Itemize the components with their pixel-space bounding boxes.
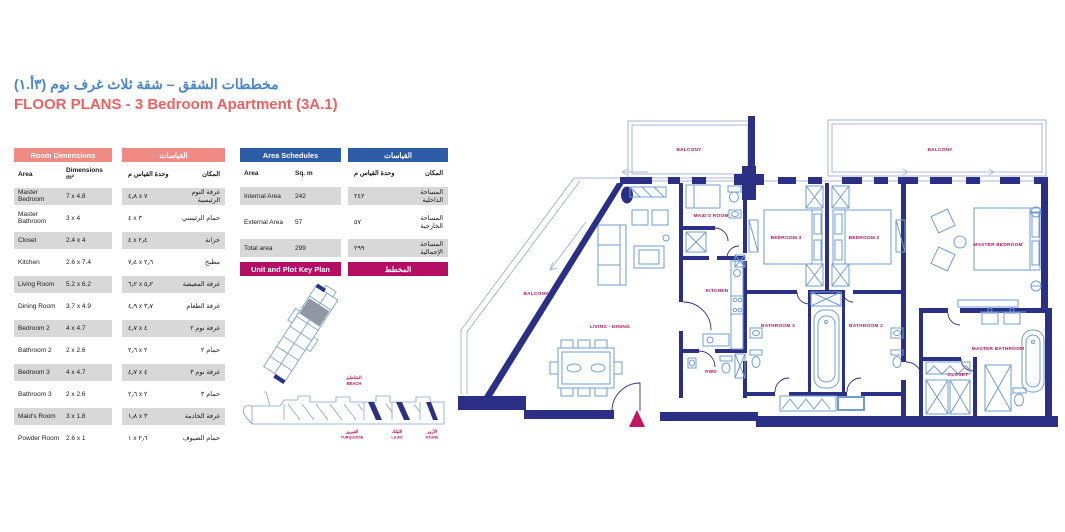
room-row: Dining Room3.7 x 4.9 ٤٫٩ x ٣٫٧غرفة الطعا… <box>14 295 225 317</box>
room-name: Bathroom 3 <box>14 391 66 398</box>
brochure-page: مخططات الشقق – شقة ثلاث غرف نوم (٣أ.١) F… <box>0 0 1065 532</box>
room-dim-ar: ١٫٨ x ٣ <box>122 412 174 420</box>
beach-label-en: BEACH <box>347 381 362 386</box>
room-row: Bathroom 32 x 2.6 ٢٫٦ x ٢حمام ٣ <box>14 383 225 405</box>
area-row: External Area57 ٥٧المساحة الخارجية <box>240 209 448 235</box>
page-title-arabic: مخططات الشقق – شقة ثلاث غرف نوم (٣أ.١) <box>14 76 279 93</box>
room-dim: 3 x 1.8 <box>66 413 112 420</box>
room-row: Living Room5.2 x 6.2 ٦٫٢ x ٥٫٢غرفة المعي… <box>14 273 225 295</box>
room-name: Bedroom 3 <box>14 369 66 376</box>
dining-furniture <box>550 340 622 396</box>
room-dim: 5.2 x 6.2 <box>66 281 112 288</box>
room-name: Powder Room <box>14 435 66 442</box>
room-name-ar: غرفة نوم ٢ <box>174 324 225 332</box>
room-dim-ar: ٤٫٨ x ٧ <box>122 192 174 200</box>
tower3-label-ar: الأزور <box>426 428 437 435</box>
room-name-ar: حمام الرئيسي <box>174 214 225 222</box>
entrance-door <box>612 383 640 411</box>
room-row: Closet2.4 x 4 ٤ x ٢٫٤خزانة <box>14 229 225 251</box>
room-dim-ar: ٢٫٦ x ٢ <box>122 346 174 354</box>
area-name: Total area <box>240 245 295 252</box>
room-dim: 2 x 2.6 <box>66 347 112 354</box>
tower2-label-en: LILAC <box>391 436 402 440</box>
room-name-ar: حمام الضيوف <box>174 434 225 442</box>
living-dining-label: LIVING - DINING <box>590 324 630 330</box>
room-dimensions-header-ar: القياسات <box>122 148 225 162</box>
room-name: Kitchen <box>14 259 66 266</box>
master-bathroom-label: MASTER BATHROOM <box>972 346 1024 352</box>
room-dim: 7 x 4.8 <box>66 193 112 200</box>
area-row: Total area299 ٢٩٩المساحة الإجمالية <box>240 235 448 261</box>
tower1-label-ar: الفيروز <box>345 429 359 435</box>
room-row: Bathroom 22 x 2.6 ٢٫٦ x ٢حمام ٢ <box>14 339 225 361</box>
room-row: Powder Room2.6 x 1 ١ x ٢٫٦حمام الضيوف <box>14 427 225 449</box>
col-area-en: Area <box>240 170 295 177</box>
room-dim: 3 x 4 <box>66 215 112 222</box>
area-name: Internal Area <box>240 193 295 200</box>
bedroom3-label: BEDROOM 3 <box>771 235 802 241</box>
area-name: External Area <box>240 219 295 226</box>
room-dim: 4 x 4.7 <box>66 369 112 376</box>
bathroom3-label: BATHROOM 3 <box>761 323 795 329</box>
area-schedules-table: Area Sq. m وحدة القياس م المكان Internal… <box>240 163 448 261</box>
room-name: Bedroom 2 <box>14 325 66 332</box>
room-dim-ar: ١ x ٢٫٦ <box>122 434 174 442</box>
room-name: Living Room <box>14 281 66 288</box>
highlighted-unit <box>299 298 329 326</box>
key-plan-header-en: Unit and Plot Key Plan <box>240 262 341 276</box>
floor-plan-drawing: BALCONY BALCONY BALCONY MAID'S ROOM KITC… <box>452 105 1065 457</box>
room-name-ar: غرفة النوم الرئيسية <box>174 188 225 204</box>
corridor-closet <box>780 396 864 411</box>
room-dim: 2.6 x 1 <box>66 435 112 442</box>
col-area-en: Area <box>14 171 66 178</box>
room-name-ar: غرفة الخادمة <box>174 412 225 420</box>
room-name: Dining Room <box>14 303 66 310</box>
room-name-ar: خزانة <box>174 236 225 244</box>
area-schedules-header-en: Area Schedules <box>240 148 341 162</box>
col-area-ar: المكان <box>400 169 448 177</box>
area-name-ar: المساحة الخارجية <box>400 214 448 230</box>
room-name-ar: غرفة الطعام <box>174 302 225 310</box>
room-dim: 2.4 x 4 <box>66 237 112 244</box>
room-name: Master Bedroom <box>14 189 66 203</box>
room-name-ar: غرفة نوم ٣ <box>174 368 225 376</box>
area-schedules-header-ar: القياسات <box>348 148 448 162</box>
pwd-door <box>699 351 715 367</box>
room-dim-ar: ٤ x ٣ <box>122 214 174 222</box>
tower1-label-en: TURQUOISE <box>341 436 364 440</box>
room-dim-ar: ٤٫٧ x ٤ <box>122 368 174 376</box>
col-sqm-en: Sq. m <box>295 170 341 177</box>
room-name-ar: حمام ٣ <box>174 390 225 398</box>
room-dim-ar: ٢٫٦ x ٢ <box>122 390 174 398</box>
pwd-furniture <box>688 255 745 378</box>
room-dim: 3.7 x 4.9 <box>66 303 112 310</box>
master-bedroom-label: MASTER BEDROOM <box>973 242 1022 248</box>
room-dim: 2.6 x 7.4 <box>66 259 112 266</box>
area-name-ar: المساحة الداخلية <box>400 188 448 204</box>
room-dimensions-header-en: Room Dimensions <box>14 148 112 162</box>
page-title: FLOOR PLANS - 3 Bedroom Apartment (3A.1) <box>14 96 338 113</box>
room-name-ar: حمام ٢ <box>174 346 225 354</box>
site-plan-strip <box>243 392 444 424</box>
maids-room-label: MAID'S ROOM <box>693 213 728 219</box>
tower2-label-ar: الليلك <box>392 429 403 435</box>
entrance-marker <box>629 410 645 427</box>
room-name: Maid's Room <box>14 413 66 420</box>
area-name-ar: المساحة الإجمالية <box>400 240 448 256</box>
col-dimensions-ar: وحدة القياس م <box>122 170 174 178</box>
key-plan-tower <box>257 278 345 387</box>
room-dim: 4 x 4.7 <box>66 325 112 332</box>
diagonal-wall <box>483 183 624 398</box>
kitchen-label: KITCHEN <box>706 288 729 294</box>
area-schedules-column-headers: Area Sq. m وحدة القياس م المكان <box>240 163 448 183</box>
room-dim-ar: ٦٫٢ x ٥٫٢ <box>122 280 174 288</box>
furniture <box>550 185 1044 414</box>
room-dim: 2 x 2.6 <box>66 391 112 398</box>
area-value: 242 <box>295 193 341 200</box>
balcony-top-label: BALCONY <box>676 147 702 153</box>
area-value-ar: ٢٩٩ <box>348 244 400 252</box>
room-name: Closet <box>14 237 66 244</box>
master-bedroom-furniture <box>931 207 1041 307</box>
room-name: Bathroom 2 <box>14 347 66 354</box>
room-name-ar: مطبخ <box>174 258 225 266</box>
room-row: Master Bedroom7 x 4.8 ٤٫٨ x ٧غرفة النوم … <box>14 185 225 207</box>
col-sqm-ar: وحدة القياس م <box>348 169 400 177</box>
bathroom2-label: BATHROOM 2 <box>849 323 883 329</box>
area-row: Internal Area242 ٢٤٢المساحة الداخلية <box>240 183 448 209</box>
key-plan-drawing: الشاطئ BEACH الفيروز TURQUOISE الليلك LI… <box>240 278 448 450</box>
highlighted-plot <box>368 402 382 420</box>
room-dim-ar: ٤ x ٢٫٤ <box>122 236 174 244</box>
room-name-ar: غرفة المعيشة <box>174 280 225 288</box>
room-row: Bedroom 24 x 4.7 ٤٫٧ x ٤غرفة نوم ٢ <box>14 317 225 339</box>
balcony-side-label: BALCONY <box>523 291 549 297</box>
key-plan-header-ar: المخطط <box>348 262 448 276</box>
room-dim-ar: ٧٫٤ x ٢٫٦ <box>122 258 174 266</box>
area-value: 299 <box>295 245 341 252</box>
pwd-label: PWD <box>705 369 717 375</box>
master-bathroom-furniture <box>980 308 1044 411</box>
kitchen-furniture <box>703 261 743 349</box>
room-row: Master Bathroom3 x 4 ٤ x ٣حمام الرئيسي <box>14 207 225 229</box>
bedroom2-label: BEDROOM 2 <box>849 235 880 241</box>
kitchen-door <box>683 302 711 330</box>
room-name: Master Bathroom <box>14 211 66 225</box>
tower3-label-en: AZURE <box>425 436 439 440</box>
beach-label-ar: الشاطئ <box>346 375 362 380</box>
area-value: 57 <box>295 219 341 226</box>
column <box>621 187 633 204</box>
area-value-ar: ٥٧ <box>348 218 400 226</box>
closet-furniture <box>926 362 970 414</box>
col-area-ar: المكان <box>174 170 225 178</box>
room-dimensions-column-headers: Area Dimensions m² وحدة القياس م المكان <box>14 163 225 185</box>
room-dim-ar: ٤٫٩ x ٣٫٧ <box>122 302 174 310</box>
bathrooms-furniture <box>750 292 903 388</box>
room-dim-ar: ٤٫٧ x ٤ <box>122 324 174 332</box>
room-row: Kitchen2.6 x 7.4 ٧٫٤ x ٢٫٦مطبخ <box>14 251 225 273</box>
balcony-right-label: BALCONY <box>927 147 953 153</box>
area-value-ar: ٢٤٢ <box>348 192 400 200</box>
closet-label: CLOSET <box>948 372 969 378</box>
room-row: Maid's Room3 x 1.8 ١٫٨ x ٣غرفة الخادمة <box>14 405 225 427</box>
doors <box>612 228 973 411</box>
col-dimensions-en: Dimensions m² <box>66 167 112 181</box>
room-row: Bedroom 34 x 4.7 ٤٫٧ x ٤غرفة نوم ٣ <box>14 361 225 383</box>
room-dimensions-table: Area Dimensions m² وحدة القياس م المكان … <box>14 163 225 449</box>
